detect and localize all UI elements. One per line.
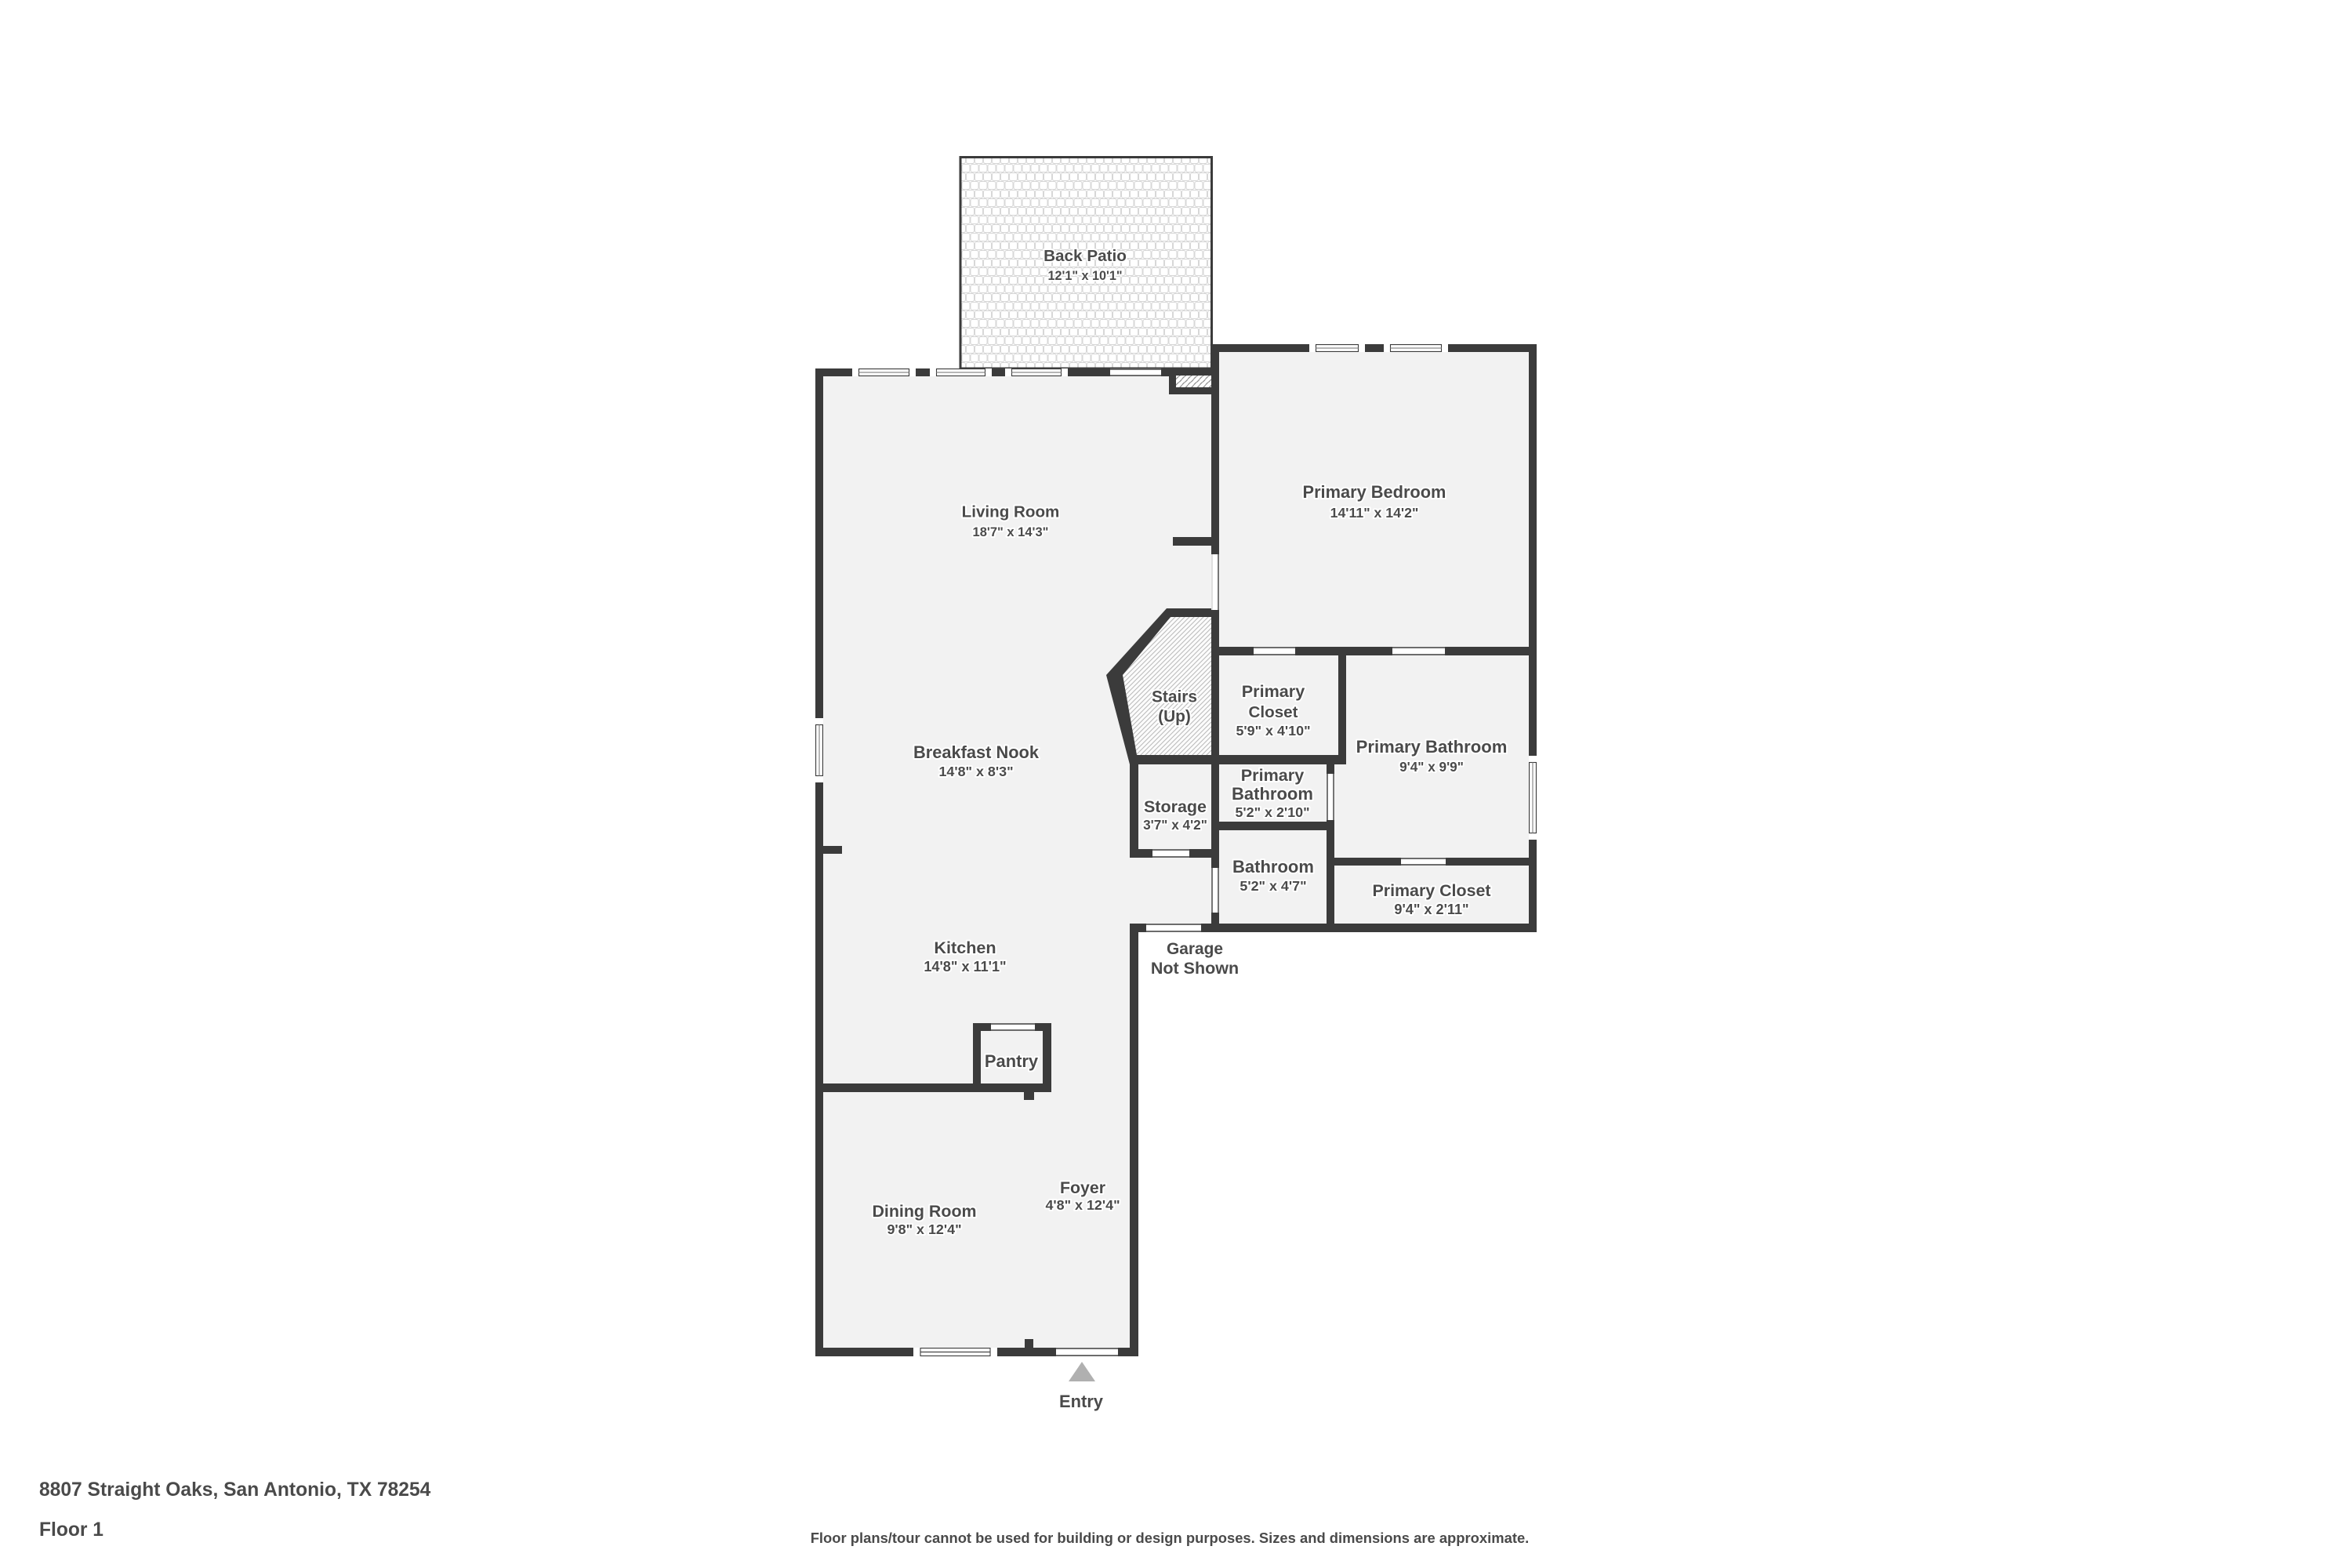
svg-text:Garage: Garage [1167,940,1223,958]
svg-text:Dining Room: Dining Room [872,1202,976,1221]
svg-text:Floor plans/tour cannot be use: Floor plans/tour cannot be used for buil… [811,1530,1530,1546]
svg-text:Pantry: Pantry [985,1051,1039,1071]
svg-text:18'7" x 14'3": 18'7" x 14'3" [973,525,1049,539]
svg-text:14'11" x 14'2": 14'11" x 14'2" [1330,505,1419,521]
svg-text:5'2" x 4'7": 5'2" x 4'7" [1240,878,1306,894]
svg-text:Primary: Primary [1242,681,1305,701]
svg-text:Primary Bedroom: Primary Bedroom [1303,482,1446,502]
svg-text:9'8" x 12'4": 9'8" x 12'4" [887,1221,961,1237]
svg-text:Closet: Closet [1249,703,1298,721]
svg-text:Bathroom: Bathroom [1232,857,1314,877]
svg-text:Back Patio: Back Patio [1044,247,1127,265]
svg-text:Bathroom: Bathroom [1232,784,1313,804]
svg-text:3'7" x 4'2": 3'7" x 4'2" [1143,817,1207,833]
svg-text:(Up): (Up) [1158,708,1191,726]
svg-text:5'2" x 2'10": 5'2" x 2'10" [1235,804,1309,820]
svg-text:Primary: Primary [1241,765,1304,785]
svg-text:Living Room: Living Room [962,503,1060,521]
svg-text:Storage: Storage [1144,797,1207,816]
svg-text:Primary Bathroom: Primary Bathroom [1356,737,1508,757]
svg-text:12'1" x 10'1": 12'1" x 10'1" [1047,269,1122,283]
svg-text:5'9" x 4'10": 5'9" x 4'10" [1236,723,1310,739]
svg-text:8807 Straight Oaks, San Antoni: 8807 Straight Oaks, San Antonio, TX 7825… [39,1479,431,1501]
svg-text:Stairs: Stairs [1152,688,1197,706]
svg-text:14'8" x 11'1": 14'8" x 11'1" [924,959,1006,975]
svg-text:Foyer: Foyer [1060,1178,1105,1197]
svg-text:14'8" x 8'3": 14'8" x 8'3" [938,764,1013,779]
svg-text:9'4" x 9'9": 9'4" x 9'9" [1399,759,1464,775]
svg-text:9'4" x 2'11": 9'4" x 2'11" [1394,902,1468,917]
svg-text:Floor 1: Floor 1 [39,1519,103,1541]
svg-text:Breakfast Nook: Breakfast Nook [913,742,1040,762]
svg-text:Primary Closet: Primary Closet [1373,881,1491,900]
svg-text:Kitchen: Kitchen [934,938,996,957]
svg-text:4'8" x 12'4": 4'8" x 12'4" [1045,1197,1120,1213]
svg-text:Not Shown: Not Shown [1151,959,1239,978]
svg-text:Entry: Entry [1059,1392,1104,1411]
